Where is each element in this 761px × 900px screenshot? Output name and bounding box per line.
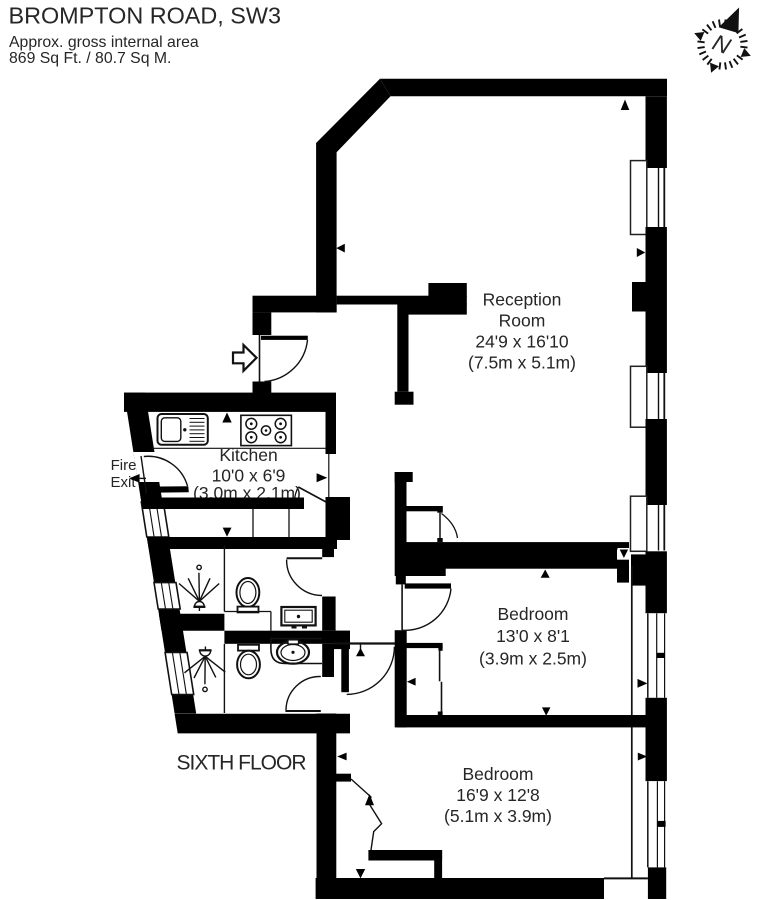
svg-text:13'0 x 8'1: 13'0 x 8'1 <box>496 626 570 646</box>
svg-text:BROMPTON ROAD, SW3: BROMPTON ROAD, SW3 <box>9 3 282 29</box>
svg-text:Bedroom: Bedroom <box>462 764 533 784</box>
svg-text:Reception: Reception <box>483 290 562 310</box>
svg-text:(3.9m x 2.5m): (3.9m x 2.5m) <box>479 649 587 669</box>
svg-text:Bedroom: Bedroom <box>497 604 568 624</box>
svg-text:16'9 x 12'8: 16'9 x 12'8 <box>456 785 540 805</box>
svg-text:Fire: Fire <box>111 457 137 474</box>
svg-text:SIXTH FLOOR: SIXTH FLOOR <box>177 752 307 775</box>
svg-text:(5.1m x 3.9m): (5.1m x 3.9m) <box>444 806 552 826</box>
svg-text:Approx. gross internal area: Approx. gross internal area <box>9 34 199 51</box>
svg-text:869 Sq Ft. / 80.7 Sq M.: 869 Sq Ft. / 80.7 Sq M. <box>9 50 171 67</box>
svg-text:(7.5m x 5.1m): (7.5m x 5.1m) <box>468 353 576 373</box>
svg-text:Kitchen: Kitchen <box>219 445 277 465</box>
svg-text:Exit: Exit <box>110 474 136 491</box>
svg-text:Room: Room <box>499 311 546 331</box>
svg-text:24'9 x 16'10: 24'9 x 16'10 <box>475 332 569 352</box>
